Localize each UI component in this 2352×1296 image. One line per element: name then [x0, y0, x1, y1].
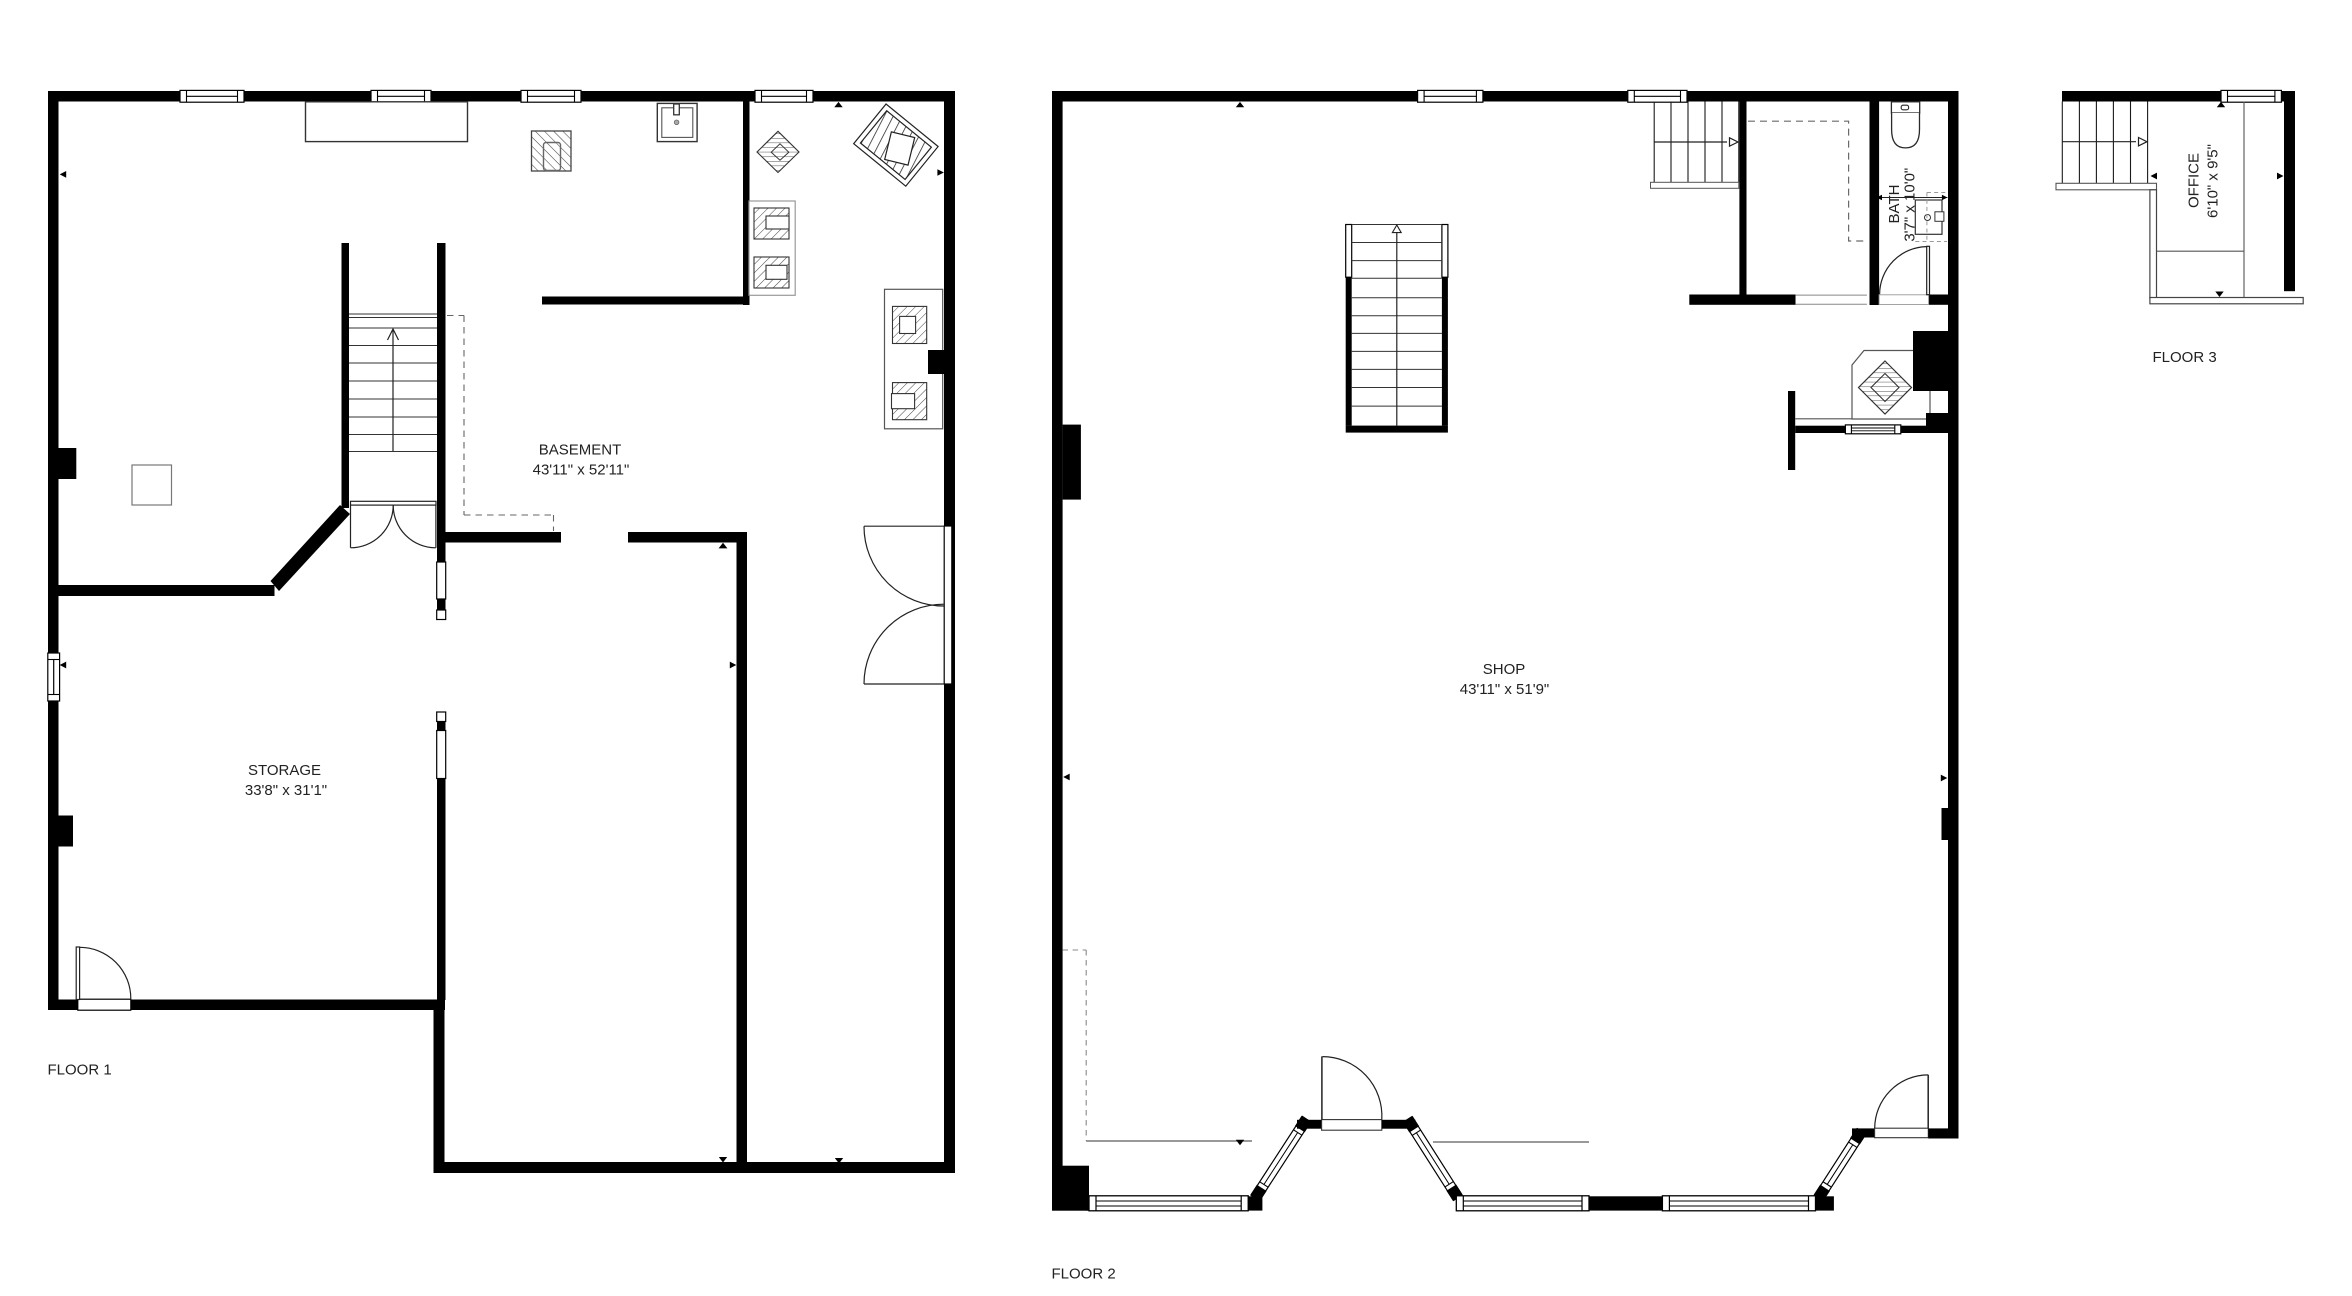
svg-text:43'11" x 51'9": 43'11" x 51'9"	[1460, 681, 1550, 698]
svg-text:OFFICE: OFFICE	[2186, 153, 2203, 208]
svg-text:6'10" x 9'5": 6'10" x 9'5"	[2205, 144, 2222, 218]
svg-text:FLOOR 1: FLOOR 1	[48, 1062, 112, 1079]
svg-text:BASEMENT: BASEMENT	[539, 442, 622, 459]
svg-text:STORAGE: STORAGE	[248, 762, 321, 779]
svg-text:FLOOR 2: FLOOR 2	[1052, 1266, 1116, 1283]
svg-text:3'7" x 10'0": 3'7" x 10'0"	[1902, 168, 1919, 242]
svg-text:BATH: BATH	[1886, 185, 1903, 224]
svg-text:FLOOR 3: FLOOR 3	[2153, 349, 2217, 366]
svg-text:33'8" x 31'1": 33'8" x 31'1"	[245, 782, 327, 799]
svg-text:SHOP: SHOP	[1483, 661, 1526, 678]
svg-text:43'11" x 52'11": 43'11" x 52'11"	[533, 462, 630, 479]
